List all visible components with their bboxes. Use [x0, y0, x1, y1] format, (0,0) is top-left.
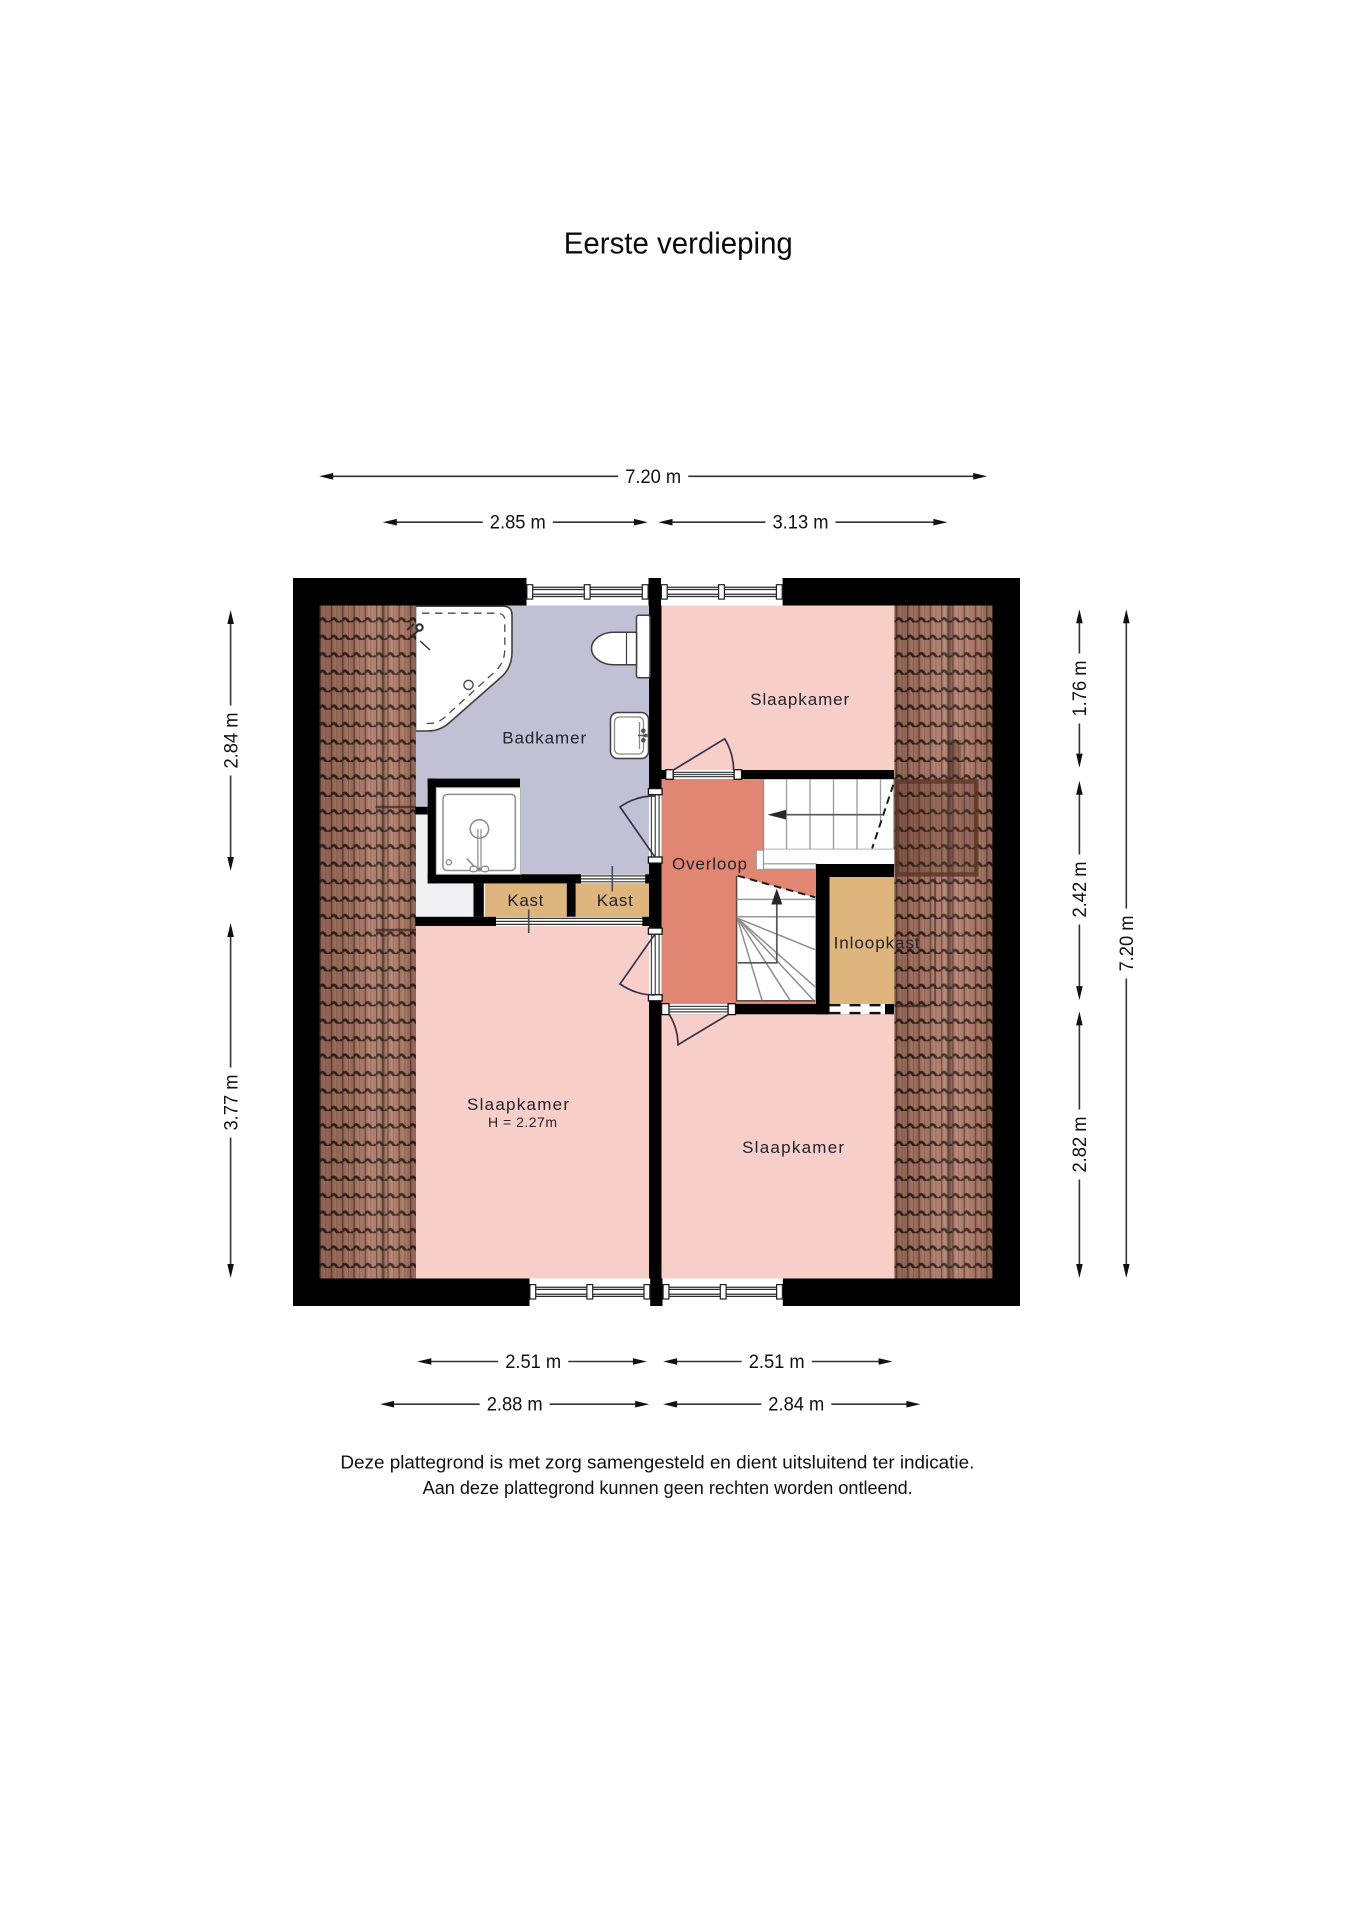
svg-text:2.84 m: 2.84 m	[221, 713, 242, 769]
svg-text:1.76 m: 1.76 m	[1070, 661, 1091, 717]
svg-text:Slaapkamer: Slaapkamer	[750, 690, 849, 709]
svg-text:3.77 m: 3.77 m	[221, 1075, 242, 1131]
svg-text:7.20 m: 7.20 m	[625, 467, 681, 488]
svg-text:Overloop: Overloop	[672, 855, 747, 874]
svg-text:H = 2.27m: H = 2.27m	[488, 1114, 557, 1130]
svg-text:7.20 m: 7.20 m	[1117, 916, 1138, 972]
svg-text:Slaapkamer: Slaapkamer	[742, 1138, 844, 1157]
svg-text:3.13 m: 3.13 m	[773, 513, 829, 534]
svg-text:2.85 m: 2.85 m	[490, 513, 546, 534]
svg-text:2.84 m: 2.84 m	[768, 1395, 824, 1416]
svg-text:Deze plattegrond is met zorg s: Deze plattegrond is met zorg samengestel…	[340, 1452, 974, 1472]
svg-text:Badkamer: Badkamer	[502, 729, 586, 748]
svg-text:2.51 m: 2.51 m	[505, 1352, 561, 1373]
svg-text:2.82 m: 2.82 m	[1070, 1117, 1091, 1173]
svg-text:Kast: Kast	[597, 891, 633, 910]
svg-text:2.42 m: 2.42 m	[1070, 862, 1091, 918]
svg-text:2.88 m: 2.88 m	[487, 1395, 543, 1416]
svg-text:Kast: Kast	[507, 891, 543, 910]
svg-text:Slaapkamer: Slaapkamer	[467, 1095, 569, 1114]
svg-text:2.51 m: 2.51 m	[749, 1352, 805, 1373]
svg-text:Eerste verdieping: Eerste verdieping	[564, 226, 793, 261]
svg-text:Inloopkast: Inloopkast	[834, 933, 920, 952]
svg-text:Aan deze plattegrond kunnen ge: Aan deze plattegrond kunnen geen rechten…	[423, 1478, 913, 1498]
